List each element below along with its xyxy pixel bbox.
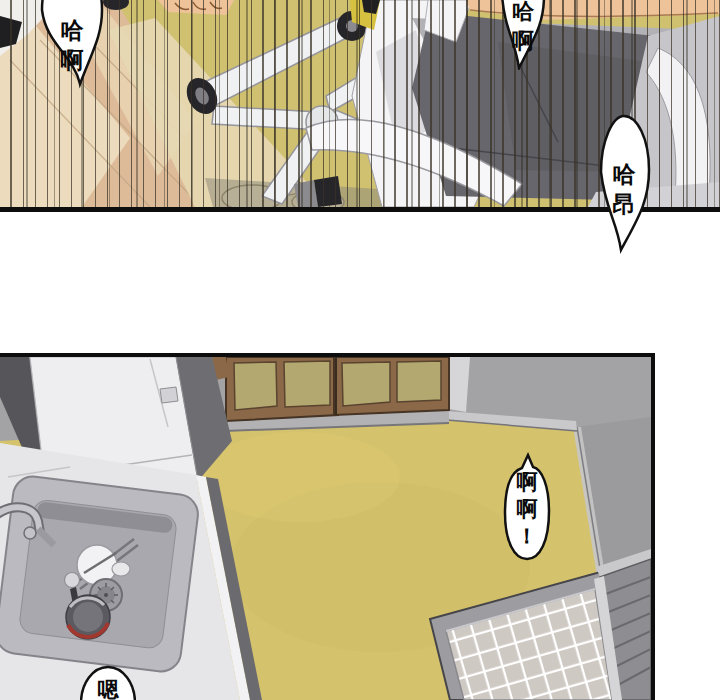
panel-bottom: 啊啊！ 嗯	[0, 353, 655, 700]
bubble-text: 嗯	[96, 677, 119, 700]
speech-bubble-kitchen: 啊啊！	[499, 451, 555, 573]
bubble-text: 哈啊	[511, 0, 535, 55]
sliding-door	[212, 357, 449, 431]
cup	[65, 573, 80, 588]
fridge-handle	[160, 387, 178, 403]
speech-bubble-sink: 嗯	[80, 663, 136, 700]
bubble-text: 啊啊！	[515, 469, 538, 550]
bubble-text: 哈啊	[59, 16, 84, 76]
speech-bubble-top-left: 哈啊	[36, 0, 108, 90]
speech-bubble-right: 哈昂	[593, 110, 655, 255]
small-dish	[112, 562, 130, 576]
bubble-text: 哈昂	[611, 160, 636, 220]
speech-bubble-top-center: 哈啊	[494, 0, 552, 70]
comic-page: 哈啊 哈啊 哈昂	[0, 0, 720, 700]
